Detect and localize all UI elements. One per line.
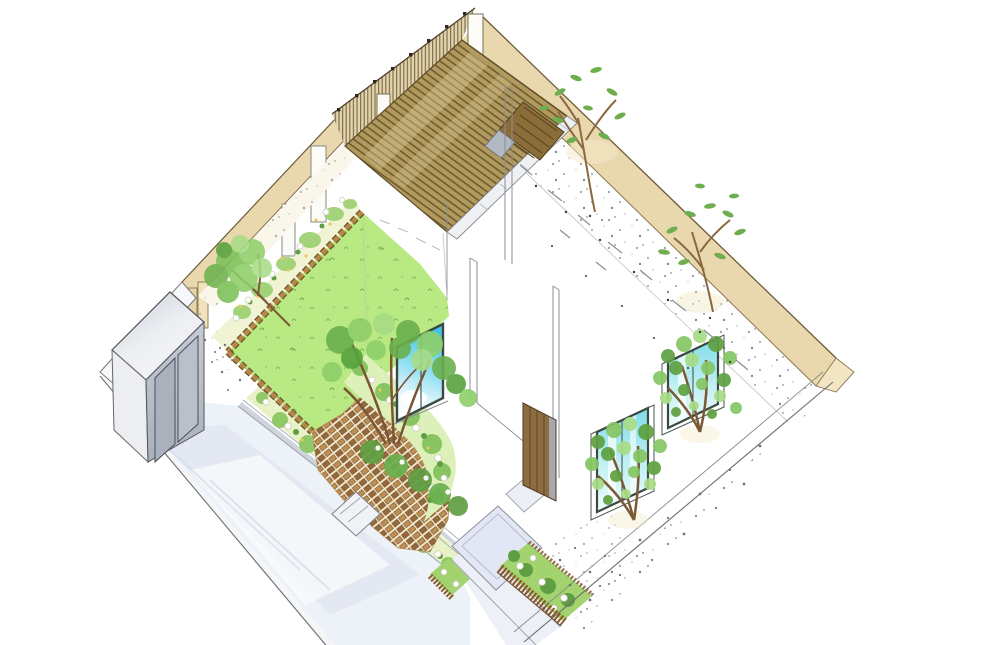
- garden-plan-illustration: [0, 0, 1000, 645]
- shed-door: [178, 336, 198, 442]
- storage-shed: [112, 292, 204, 462]
- perimeter-wall-right: [462, 16, 854, 392]
- garden-plan-sketch: [0, 0, 1000, 645]
- entry-door: [523, 403, 556, 501]
